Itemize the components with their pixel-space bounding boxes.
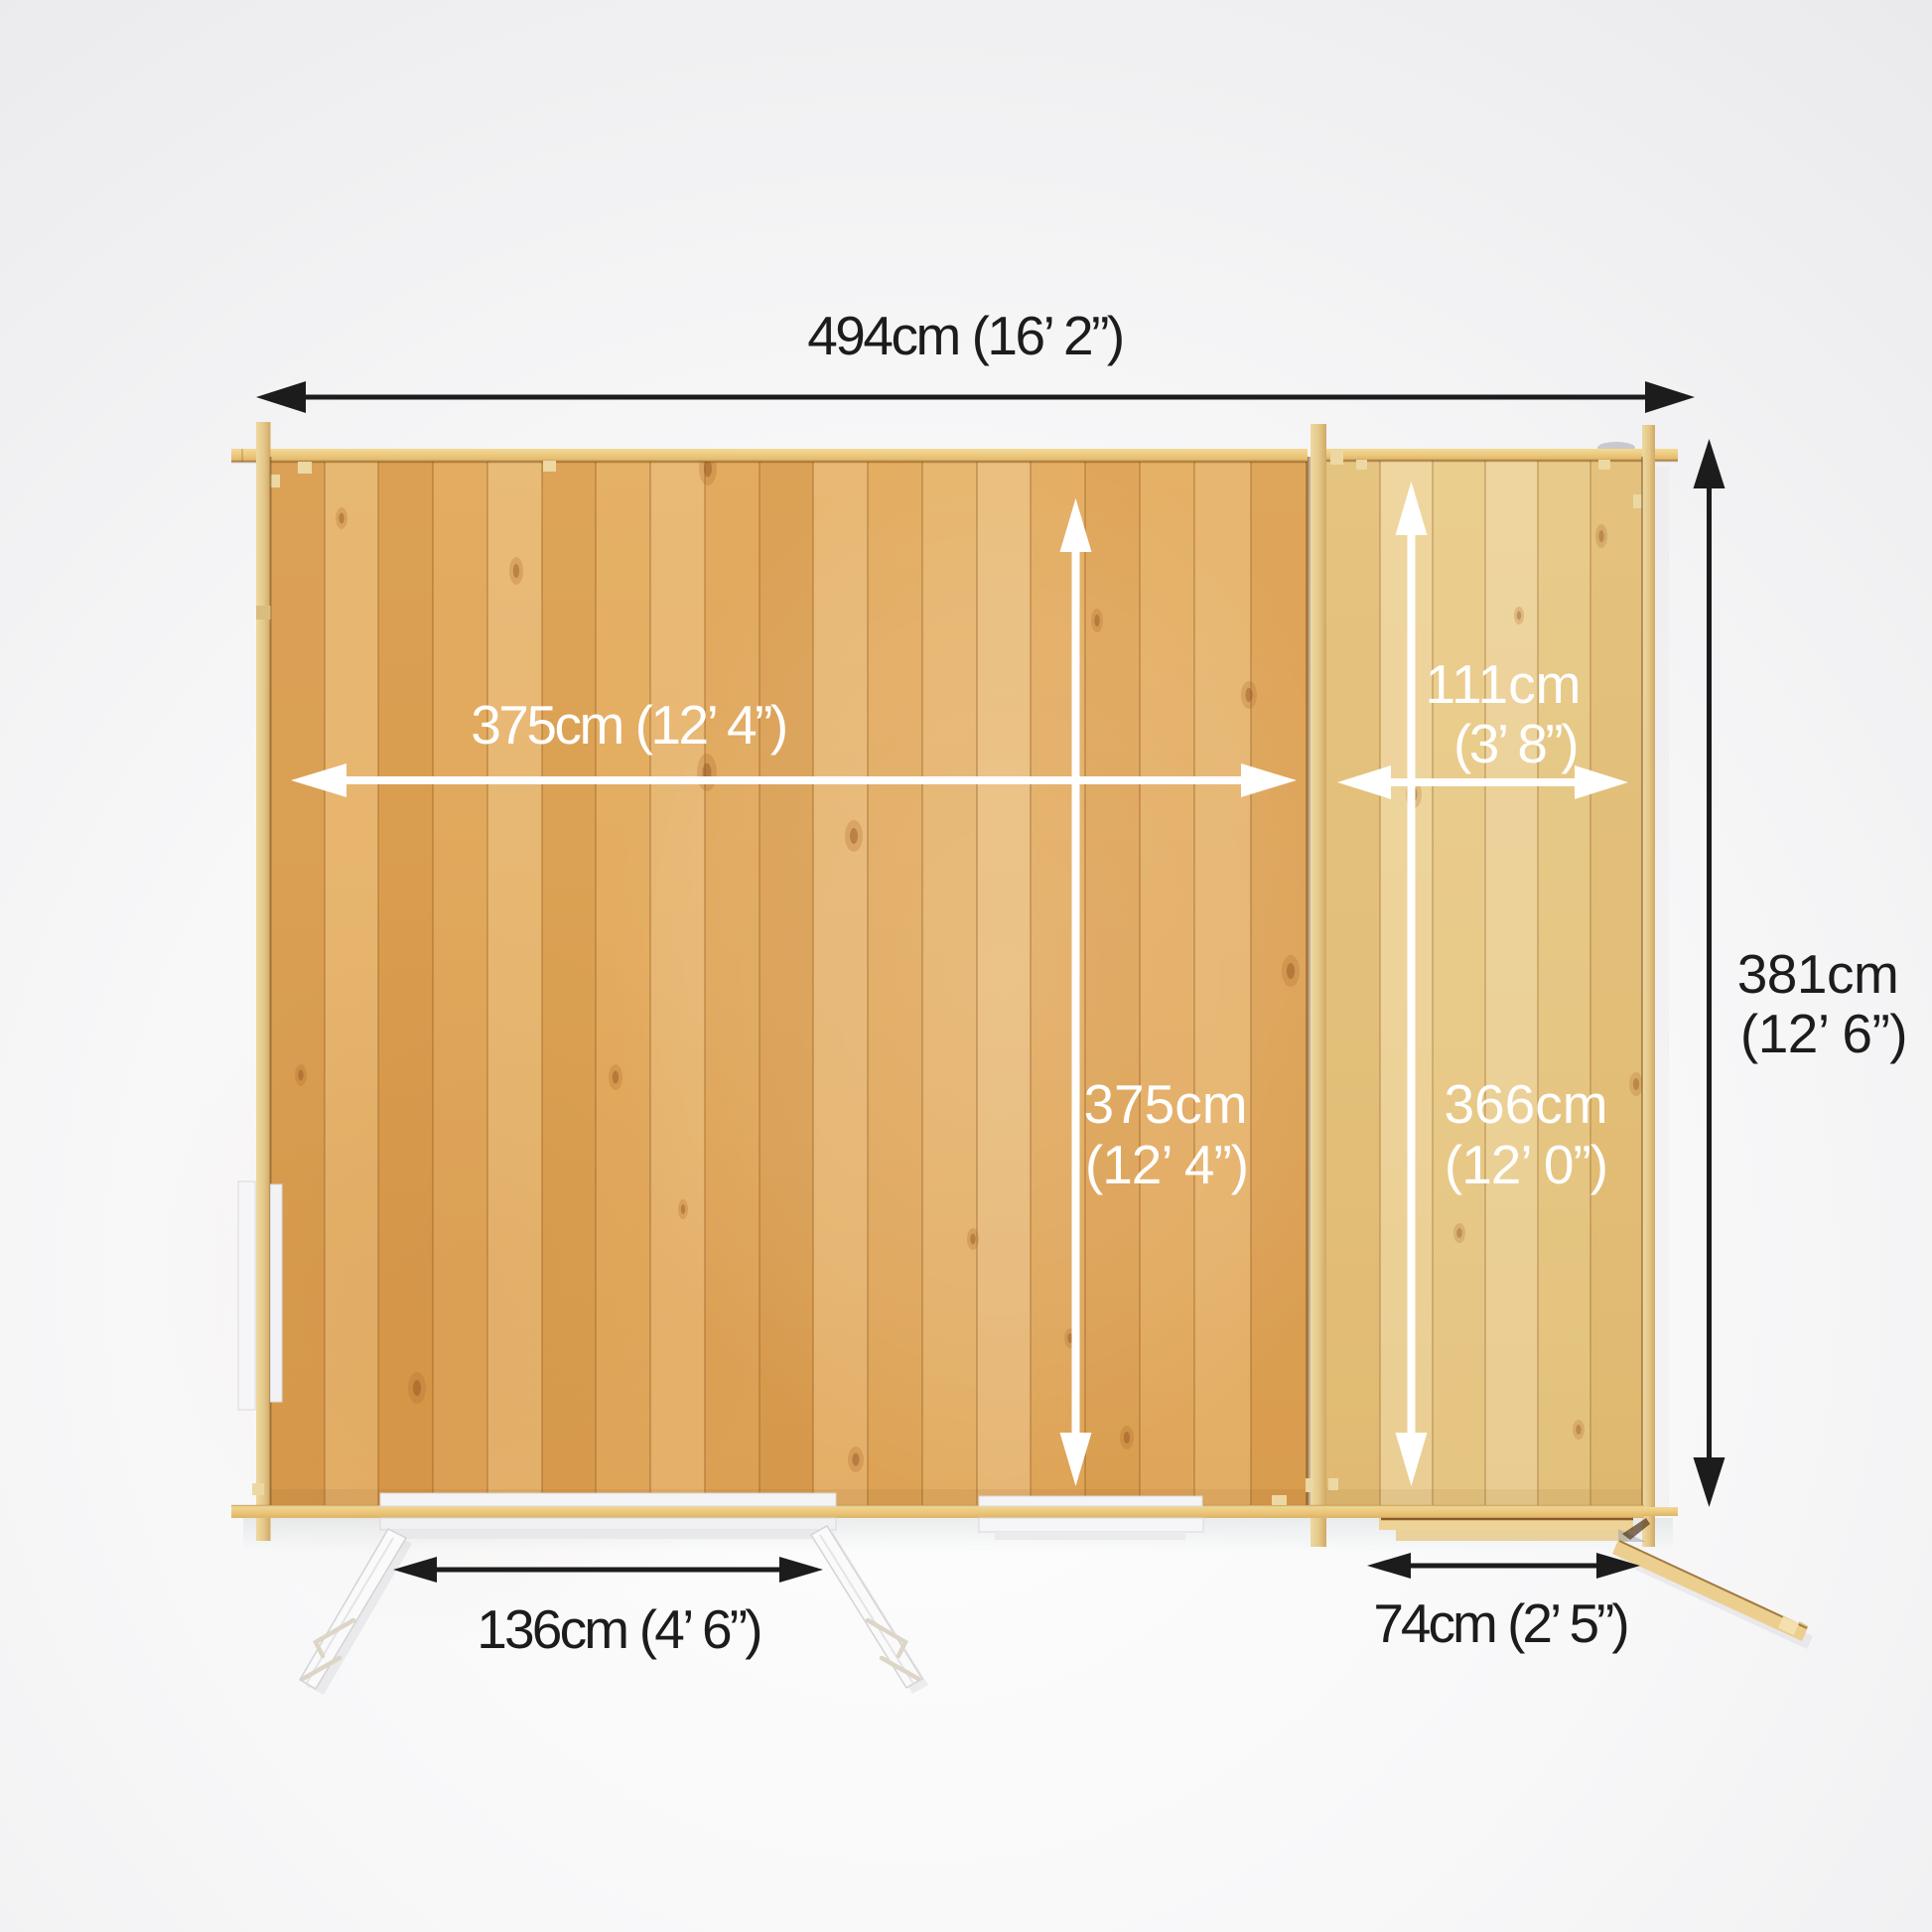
svg-text:366cm: 366cm	[1444, 1073, 1607, 1135]
svg-text:375cm (12’ 4”): 375cm (12’ 4”)	[471, 694, 786, 756]
svg-text:136cm (4’ 6”): 136cm (4’ 6”)	[477, 1598, 760, 1660]
svg-text:111cm: 111cm	[1426, 653, 1582, 715]
svg-text:381cm: 381cm	[1737, 943, 1899, 1005]
svg-text:375cm: 375cm	[1083, 1073, 1247, 1135]
svg-text:(12’ 0”): (12’ 0”)	[1445, 1134, 1607, 1195]
svg-text:(3’ 8”): (3’ 8”)	[1453, 713, 1577, 774]
svg-text:(12’ 4”): (12’ 4”)	[1085, 1134, 1248, 1195]
svg-text:74cm (2’ 5”): 74cm (2’ 5”)	[1373, 1592, 1626, 1654]
svg-text:(12’ 6”): (12’ 6”)	[1740, 1003, 1907, 1064]
svg-text:494cm (16’ 2”): 494cm (16’ 2”)	[807, 305, 1123, 366]
